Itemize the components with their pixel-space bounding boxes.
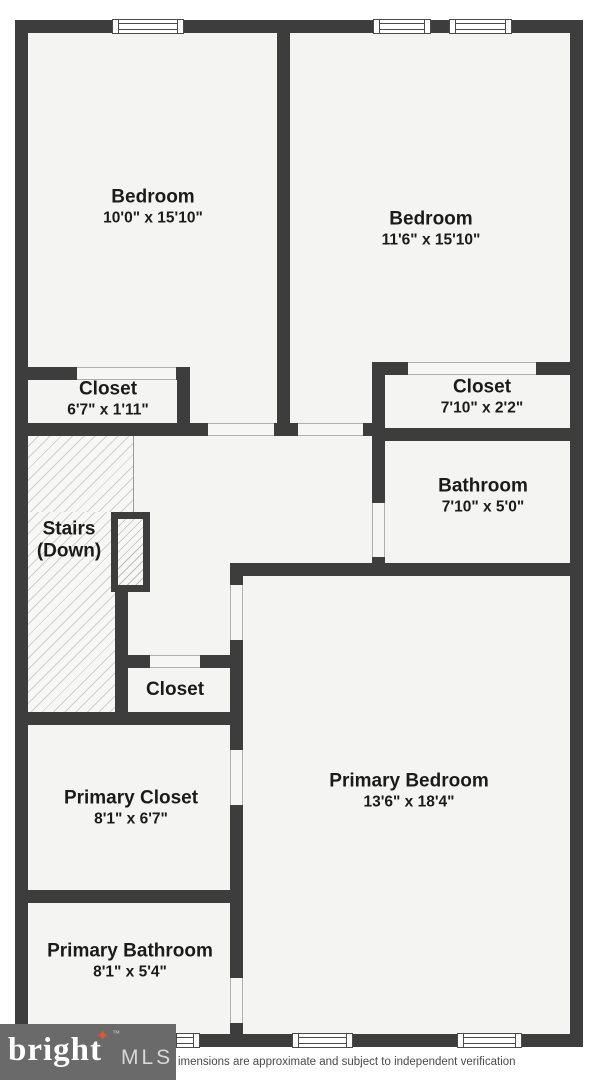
- room-dims: 7'10" x 5'0": [438, 498, 528, 519]
- room-dims: 10'0" x 15'10": [103, 209, 203, 230]
- room-label-primary-bedroom: Primary Bedroom 13'6" x 18'4": [329, 770, 488, 813]
- trademark-symbol: ™: [112, 1029, 120, 1038]
- brand-name: bright: [8, 1032, 102, 1069]
- wall: [570, 20, 583, 1047]
- door-opening: [230, 585, 243, 640]
- wall: [15, 712, 243, 725]
- room-label-closet-middle: Closet: [146, 679, 204, 701]
- room-name: Primary Bathroom: [47, 940, 213, 962]
- wall: [15, 890, 243, 903]
- window-pane: [456, 23, 505, 30]
- room-dims: 8'1" x 5'4": [47, 963, 213, 984]
- window-symbol: [457, 1033, 522, 1048]
- brand-logo-inner: bright ✦ ™ MLS: [0, 1024, 176, 1080]
- door-opening: [298, 423, 363, 436]
- window-jamb: [515, 1034, 521, 1047]
- wall: [115, 588, 128, 712]
- room-name: Bedroom: [103, 186, 203, 208]
- room-name: Stairs: [37, 519, 101, 541]
- window-pane: [464, 1037, 515, 1044]
- wall: [230, 563, 583, 576]
- room-name: Bedroom: [382, 208, 481, 230]
- window-pane: [119, 23, 177, 30]
- window-jamb: [193, 1034, 199, 1047]
- floor-plan: Bedroom 10'0" x 15'10" Bedroom 11'6" x 1…: [0, 0, 609, 1080]
- window-symbol: [292, 1033, 353, 1048]
- room-name: Bathroom: [438, 475, 528, 497]
- room-label-primary-closet: Primary Closet 8'1" x 6'7": [64, 787, 198, 830]
- window-jamb: [346, 1034, 352, 1047]
- brand-suffix: MLS: [121, 1046, 173, 1070]
- wall: [277, 33, 290, 436]
- star-icon: ✦: [96, 1026, 109, 1046]
- stairs-hatch: [28, 436, 134, 513]
- room-label-primary-bathroom: Primary Bathroom 8'1" x 5'4": [47, 940, 213, 983]
- room-dims: 7'10" x 2'2": [441, 399, 523, 420]
- room-label-closet-right: Closet 7'10" x 2'2": [441, 376, 523, 419]
- room-dims: 6'7" x 1'11": [67, 401, 149, 422]
- room-name: (Down): [37, 541, 101, 563]
- room-label-bathroom: Bathroom 7'10" x 5'0": [438, 475, 528, 518]
- window-jamb: [177, 20, 183, 33]
- room-dims: 8'1" x 6'7": [64, 810, 198, 831]
- door-opening: [372, 503, 385, 557]
- room-label-bedroom-2: Bedroom 11'6" x 15'10": [382, 208, 481, 251]
- room-name: Closet: [67, 378, 149, 400]
- room-name: Primary Bedroom: [329, 770, 488, 792]
- door-opening: [208, 423, 274, 436]
- window-jamb: [505, 20, 511, 33]
- window-symbol: [112, 19, 184, 34]
- window-pane: [177, 1037, 193, 1044]
- door-opening: [408, 362, 536, 375]
- door-opening: [230, 978, 243, 1023]
- room-name: Closet: [146, 679, 204, 701]
- room-name: Primary Closet: [64, 787, 198, 809]
- door-opening: [150, 655, 200, 668]
- stair-railing: [111, 512, 150, 592]
- window-pane: [299, 1037, 346, 1044]
- room-dims: 11'6" x 15'10": [382, 231, 481, 252]
- window-symbol: [373, 19, 431, 34]
- room-label-closet-left: Closet 6'7" x 1'11": [67, 378, 149, 421]
- door-opening: [230, 750, 243, 805]
- disclaimer-text: imensions are approximate and subject to…: [178, 1056, 516, 1068]
- room-name: Closet: [441, 376, 523, 398]
- window-jamb: [424, 20, 430, 33]
- window-symbol: [449, 19, 512, 34]
- room-label-bedroom-1: Bedroom 10'0" x 15'10": [103, 186, 203, 229]
- wall: [372, 428, 583, 441]
- room-label-stairs: Stairs (Down): [37, 519, 101, 564]
- room-dims: 13'6" x 18'4": [329, 793, 488, 814]
- window-pane: [380, 23, 424, 30]
- brand-logo: bright ✦ ™ MLS: [0, 1024, 176, 1080]
